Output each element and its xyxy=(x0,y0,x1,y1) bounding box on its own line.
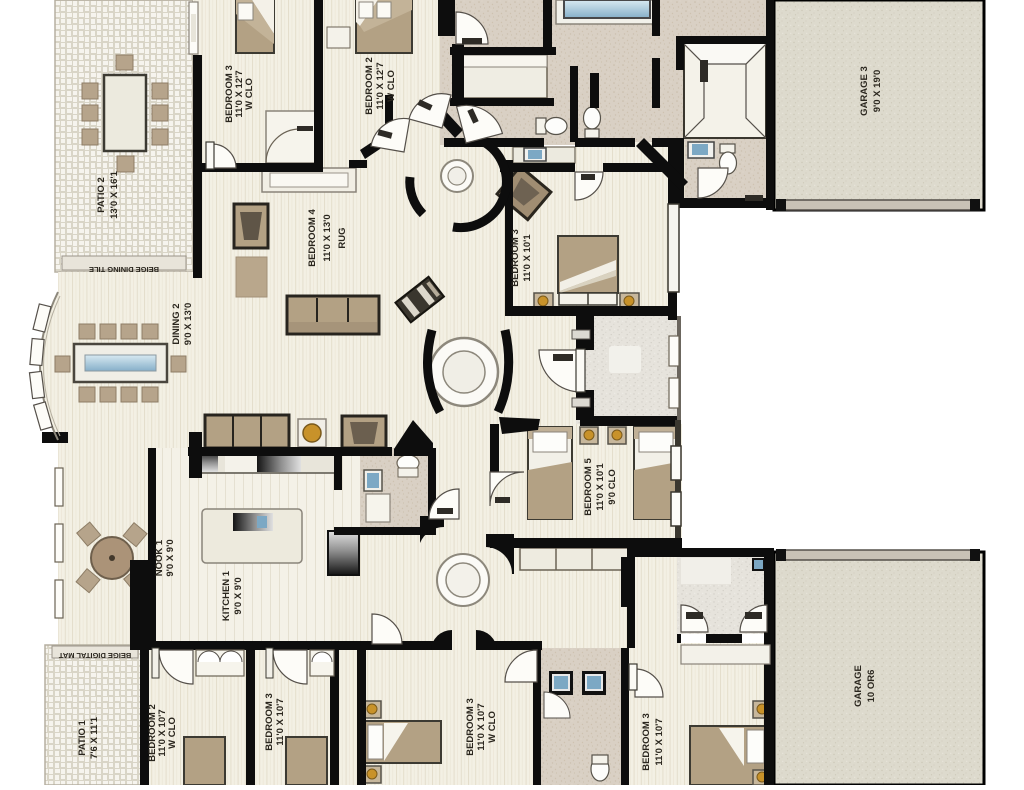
svg-text:NOOK 19'0 X 9'0: NOOK 19'0 X 9'0 xyxy=(154,539,176,577)
svg-text:BEIGE DINING TILE: BEIGE DINING TILE xyxy=(89,265,159,274)
svg-text:BEDROOM 311'0 X 10'1: BEDROOM 311'0 X 10'1 xyxy=(510,229,533,287)
svg-text:PATIO 17'6 X 11'1: PATIO 17'6 X 11'1 xyxy=(77,716,100,759)
svg-text:BEIGE DIGITAL MAT: BEIGE DIGITAL MAT xyxy=(58,651,131,660)
svg-text:DINING 29'0 X 13'0: DINING 29'0 X 13'0 xyxy=(171,303,194,346)
svg-text:KITCHEN 19'0 X 9'0: KITCHEN 19'0 X 9'0 xyxy=(221,570,244,621)
svg-text:BEDROOM 311'0 X 10'7: BEDROOM 311'0 X 10'7 xyxy=(264,693,286,751)
